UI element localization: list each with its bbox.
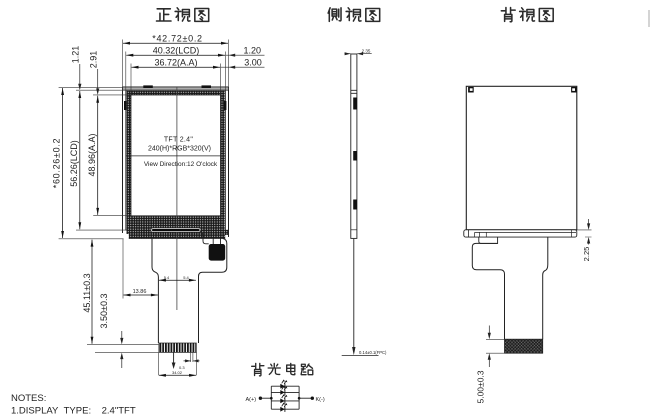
svg-text:0.14±0.1(FPC): 0.14±0.1(FPC) xyxy=(359,350,387,355)
svg-text:3.00: 3.00 xyxy=(244,58,262,68)
svg-text:5.4: 5.4 xyxy=(183,275,189,280)
svg-text:View Direction:12 O'clock: View Direction:12 O'clock xyxy=(144,161,218,168)
svg-text:*60.26±0.2: *60.26±0.2 xyxy=(52,138,62,188)
svg-text:45.11±0.3: 45.11±0.3 xyxy=(82,273,92,312)
svg-text:1.20: 1.20 xyxy=(244,46,262,56)
svg-text:2.91: 2.91 xyxy=(88,51,98,69)
svg-text:1.DISPLAY TYPE: 2.4"TFT: 1.DISPLAY TYPE: 2.4"TFT xyxy=(11,405,136,416)
svg-text:2.35: 2.35 xyxy=(362,49,371,54)
svg-text:56.26(LCD): 56.26(LCD) xyxy=(69,140,79,187)
svg-text:5.4: 5.4 xyxy=(164,275,170,280)
svg-text:240(H)*RGB*320(V): 240(H)*RGB*320(V) xyxy=(148,146,211,153)
svg-text:13.86: 13.86 xyxy=(133,289,147,295)
svg-text:34.02: 34.02 xyxy=(172,370,183,375)
svg-text:5.00±0.3: 5.00±0.3 xyxy=(476,370,486,403)
svg-text:1.21: 1.21 xyxy=(70,46,80,64)
svg-text:2.25: 2.25 xyxy=(582,247,591,262)
svg-text:36.72(A.A): 36.72(A.A) xyxy=(154,58,197,68)
svg-text:48.96(A.A): 48.96(A.A) xyxy=(87,133,97,176)
svg-text:NOTES:: NOTES: xyxy=(11,393,46,404)
svg-text:40.32(LCD): 40.32(LCD) xyxy=(153,46,200,56)
svg-text:A(+): A(+) xyxy=(246,397,257,403)
svg-text:K(-): K(-) xyxy=(316,397,325,403)
svg-text:0.3: 0.3 xyxy=(179,365,185,370)
svg-text:3.50±0.3: 3.50±0.3 xyxy=(99,294,109,329)
svg-text:*42.72±0.2: *42.72±0.2 xyxy=(152,34,202,44)
svg-text:TFT 2.4": TFT 2.4" xyxy=(164,136,193,143)
